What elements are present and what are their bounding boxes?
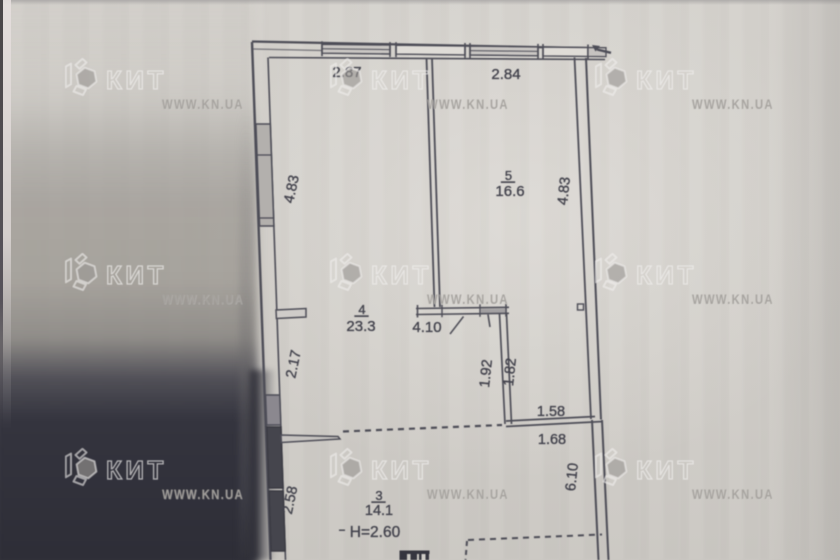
svg-text:4.83: 4.83 <box>281 174 303 205</box>
svg-text:1.58: 1.58 <box>537 404 565 420</box>
svg-text:5: 5 <box>505 168 512 183</box>
svg-text:2.17: 2.17 <box>283 349 305 380</box>
svg-text:1.92: 1.92 <box>477 359 496 389</box>
svg-text:16.6: 16.6 <box>495 183 524 200</box>
svg-text:1.82: 1.82 <box>501 357 520 387</box>
svg-text:4.83: 4.83 <box>555 176 574 206</box>
svg-text:H=2.60: H=2.60 <box>350 524 401 541</box>
svg-text:1.68: 1.68 <box>538 432 566 448</box>
